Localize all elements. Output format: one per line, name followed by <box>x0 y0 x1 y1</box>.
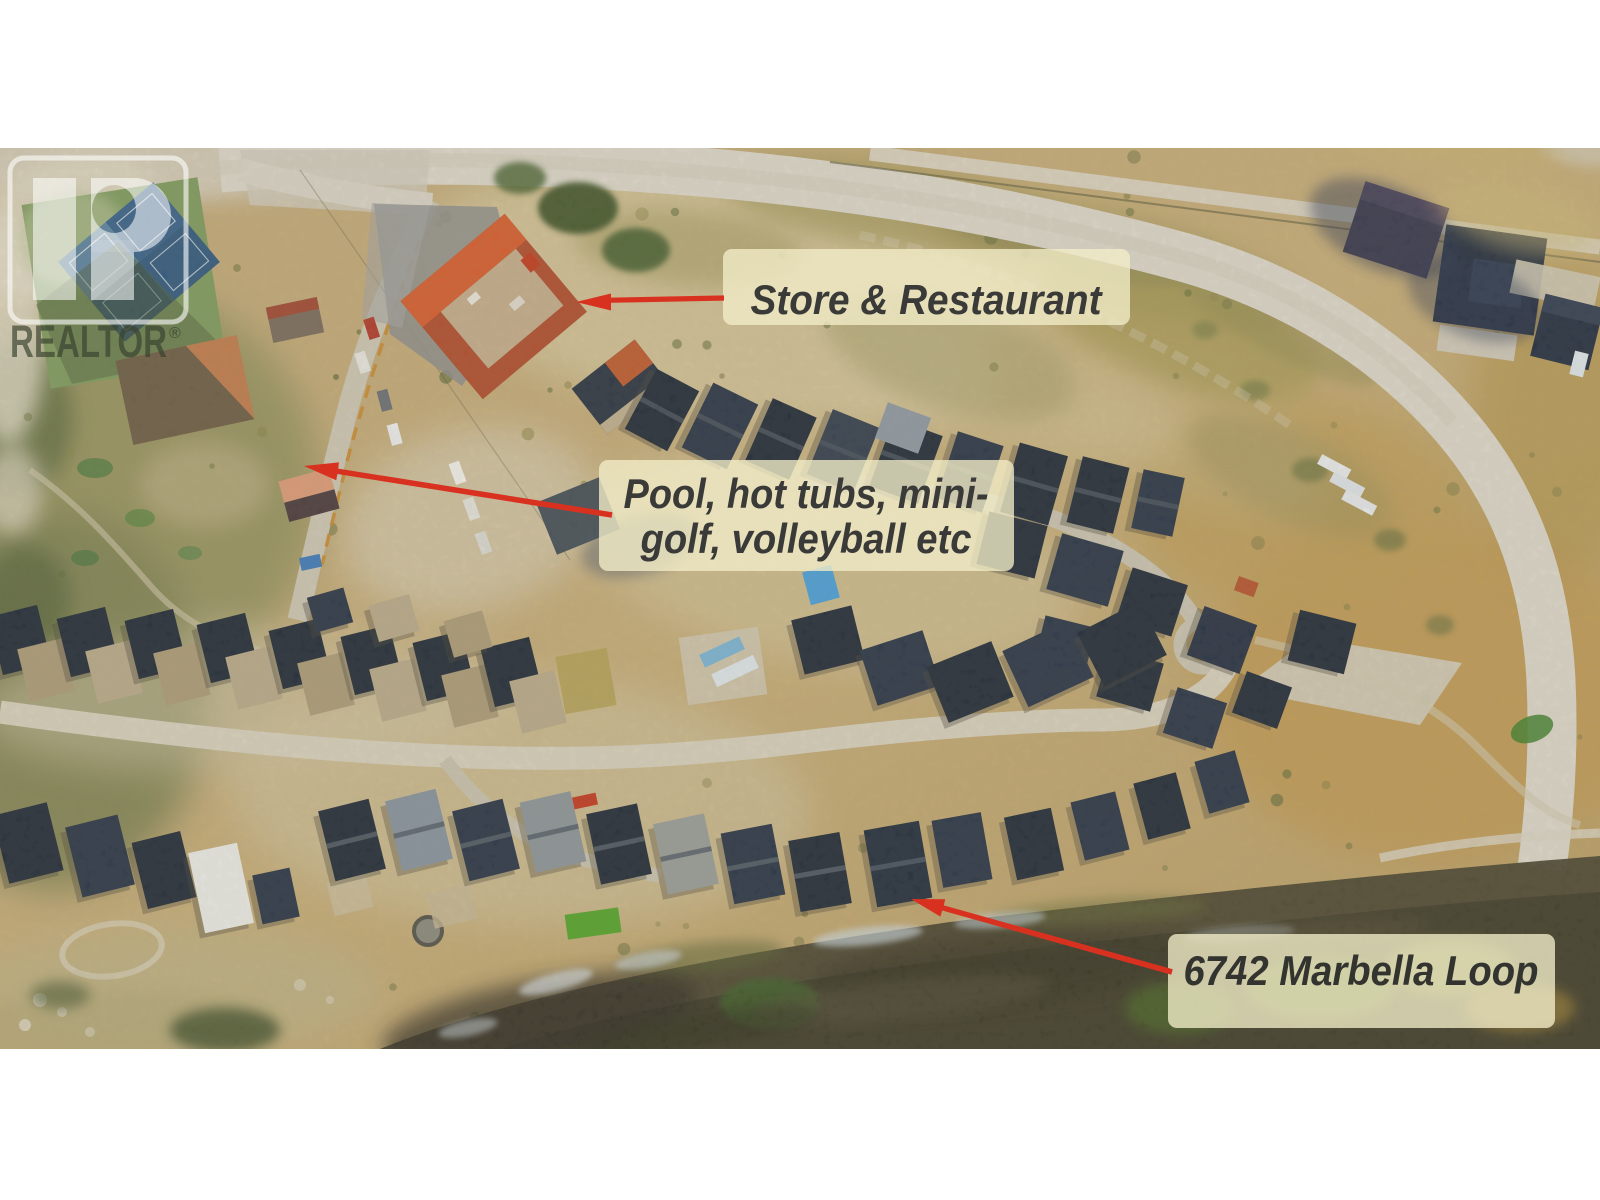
svg-text:REALTOR: REALTOR <box>10 316 167 367</box>
svg-text:golf, volleyball etc: golf, volleyball etc <box>640 515 972 562</box>
svg-text:Store & Restaurant: Store & Restaurant <box>751 276 1104 323</box>
svg-text:®: ® <box>169 325 181 342</box>
svg-text:6742 Marbella Loop: 6742 Marbella Loop <box>1184 947 1539 994</box>
svg-text:Pool, hot tubs, mini-: Pool, hot tubs, mini- <box>624 470 989 517</box>
